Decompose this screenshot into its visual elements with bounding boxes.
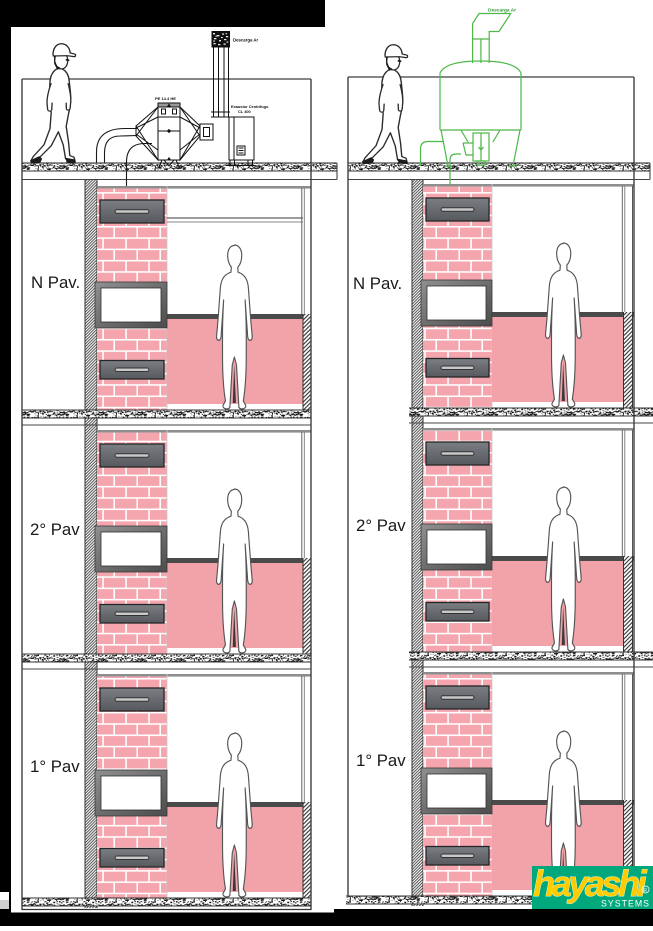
svg-text:N Pav.: N Pav. [31,273,80,292]
svg-text:1° Pav: 1° Pav [30,757,80,776]
svg-text:Descarga Ar: Descarga Ar [233,38,258,43]
svg-text:Descarga Ar: Descarga Ar [488,8,516,14]
svg-text:R: R [643,888,647,894]
svg-text:N Pav.: N Pav. [353,274,402,293]
svg-text:2° Pav: 2° Pav [30,520,80,539]
svg-text:SYSTEMS: SYSTEMS [601,899,650,909]
svg-text:1° Pav: 1° Pav [356,751,406,770]
svg-text:CL 400: CL 400 [238,109,251,114]
svg-text:PE 14.4 HE: PE 14.4 HE [155,96,176,101]
svg-text:2° Pav: 2° Pav [356,516,406,535]
